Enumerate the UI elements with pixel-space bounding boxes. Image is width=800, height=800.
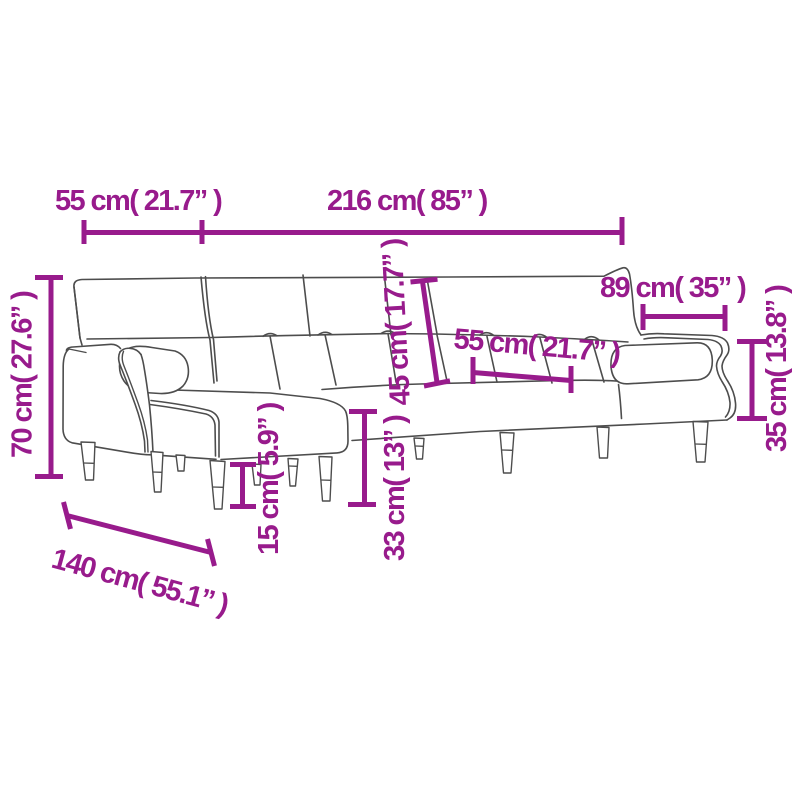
svg-text:70 cm( 27.6” ): 70 cm( 27.6” ) — [7, 291, 39, 458]
svg-text:89 cm( 35” ): 89 cm( 35” ) — [600, 272, 746, 304]
svg-text:35 cm( 13.8” ): 35 cm( 13.8” ) — [761, 285, 793, 452]
svg-text:33 cm( 13” ): 33 cm( 13” ) — [379, 415, 411, 561]
svg-text:15 cm( 5.9” ): 15 cm( 5.9” ) — [253, 402, 285, 555]
svg-text:55 cm( 21.7” ): 55 cm( 21.7” ) — [55, 185, 222, 217]
svg-text:216 cm( 85” ): 216 cm( 85” ) — [327, 185, 488, 217]
